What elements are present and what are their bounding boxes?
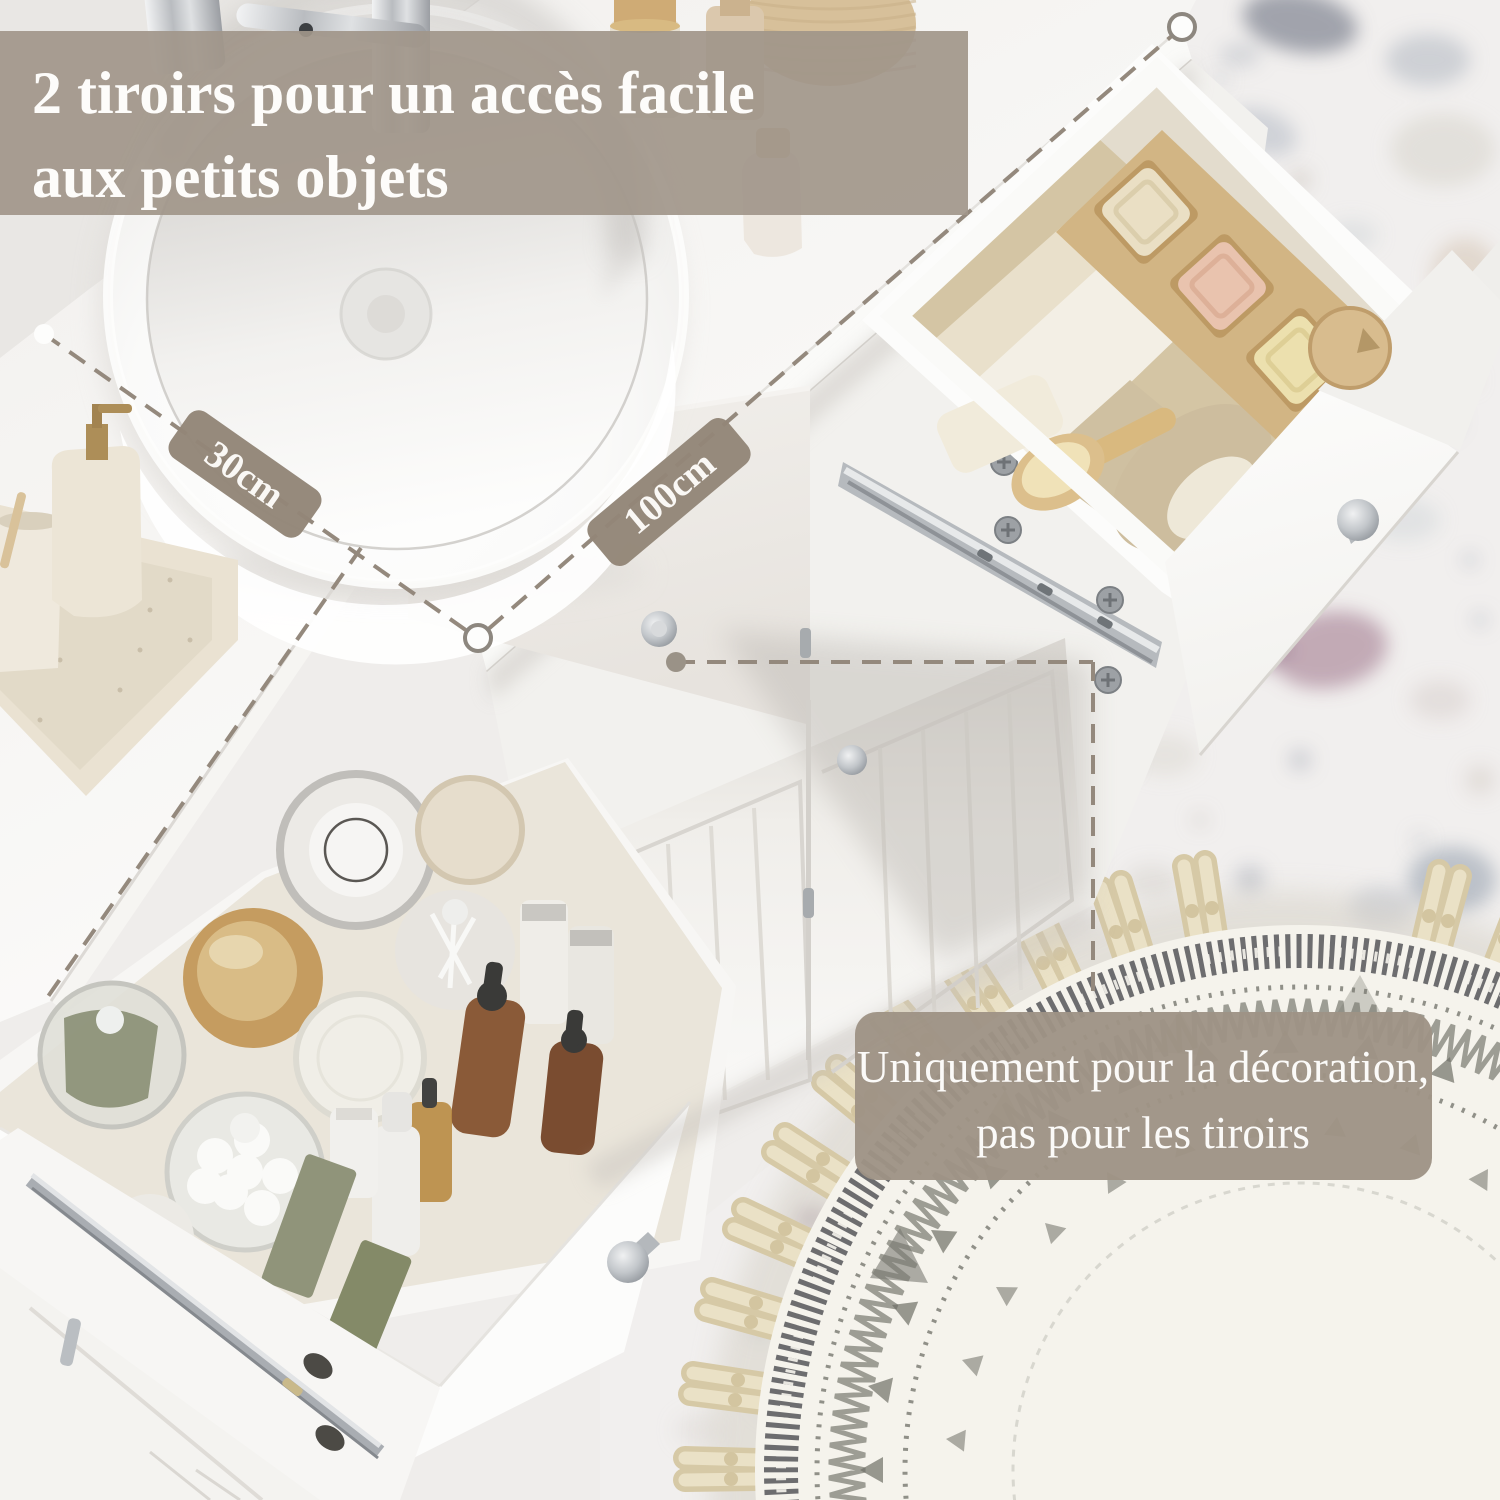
svg-text:pas pour les tiroirs: pas pour les tiroirs [976, 1108, 1310, 1158]
svg-text:2 tiroirs pour un accès facile: 2 tiroirs pour un accès facile [32, 60, 755, 126]
svg-text:Uniquement pour la décoration,: Uniquement pour la décoration, [857, 1042, 1429, 1092]
svg-text:aux petits objets: aux petits objets [32, 144, 449, 210]
